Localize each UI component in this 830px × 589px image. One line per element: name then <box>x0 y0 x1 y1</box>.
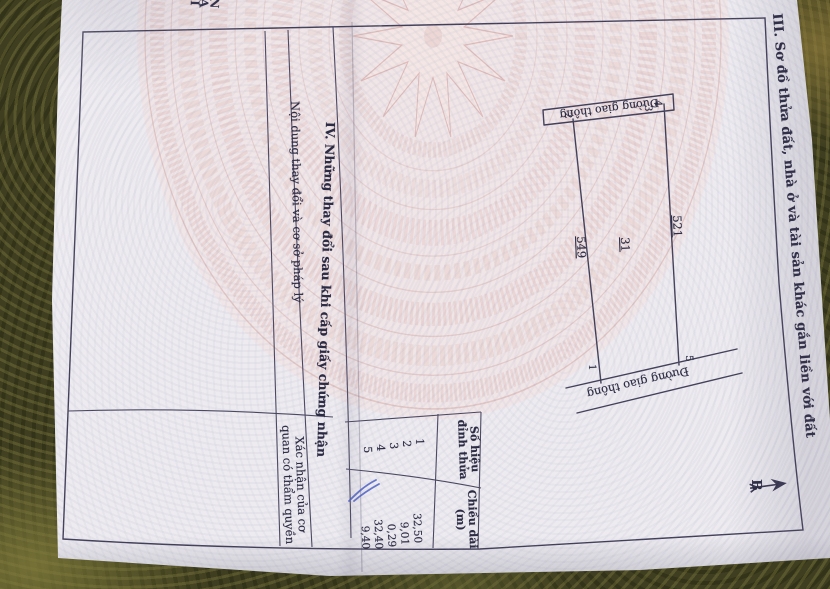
table-row-5-vertex: 5 <box>361 446 373 453</box>
parcel-number-31: 31 <box>619 237 632 255</box>
north-label: B <box>749 479 764 493</box>
table-row-3-vertex: 3 <box>387 442 399 449</box>
table-row-3-length: 0,29 <box>384 501 397 547</box>
col1-header-line2: đỉnh thửa <box>455 417 469 481</box>
vertex-label-5: 5 <box>683 355 694 362</box>
table-row-2-length: 9,01 <box>397 499 410 545</box>
table-row-4-length: 32,40 <box>371 503 384 549</box>
adjacent-parcel-549: 549 <box>575 236 588 260</box>
vertex-label-3: 3 <box>642 105 653 112</box>
vertex-table-col1-header: Số hiệu đỉnh thửa <box>455 417 481 482</box>
vertex-label-4: 4 <box>652 100 663 107</box>
table-row-1-vertex: 1 <box>413 438 425 445</box>
edge-letter: N <box>207 0 221 9</box>
vertex-label-1: 1 <box>586 364 597 371</box>
table-row-5-length: 9,40 <box>358 505 371 549</box>
section4-col2-header: Xác nhận của cơ quan có thẩm quyền <box>280 421 309 548</box>
table-row-1-length: 32,50 <box>410 497 423 543</box>
section4-col1-header: Nội dung thay đổi và cơ sở pháp lý <box>289 101 304 297</box>
vertex-label-2: 2 <box>562 112 573 119</box>
vertex-table-col2-header: Chiều dài (m) <box>453 489 479 550</box>
page-edge-province-text: IAN <box>192 0 220 10</box>
photo-of-land-certificate: IAN III. Sơ đồ thửa đất, nhà ở và tài sả… <box>0 0 830 589</box>
adjacent-parcel-521: 521 <box>671 215 684 239</box>
col2-header-line1: Chiều dài <box>465 489 479 549</box>
table-row-4-vertex: 4 <box>374 444 386 451</box>
table-row-2-vertex: 2 <box>400 440 412 447</box>
